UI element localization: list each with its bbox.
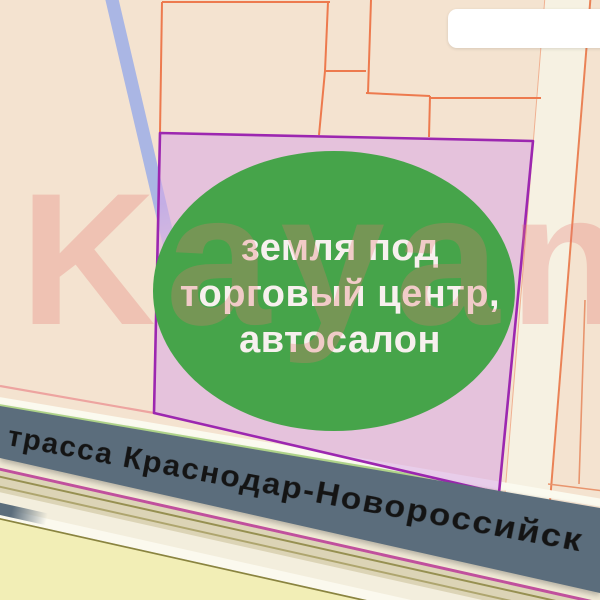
map-canvas: земля под торговый центр, автосалон Kaya… xyxy=(0,0,600,600)
blank-label-box xyxy=(448,9,600,48)
